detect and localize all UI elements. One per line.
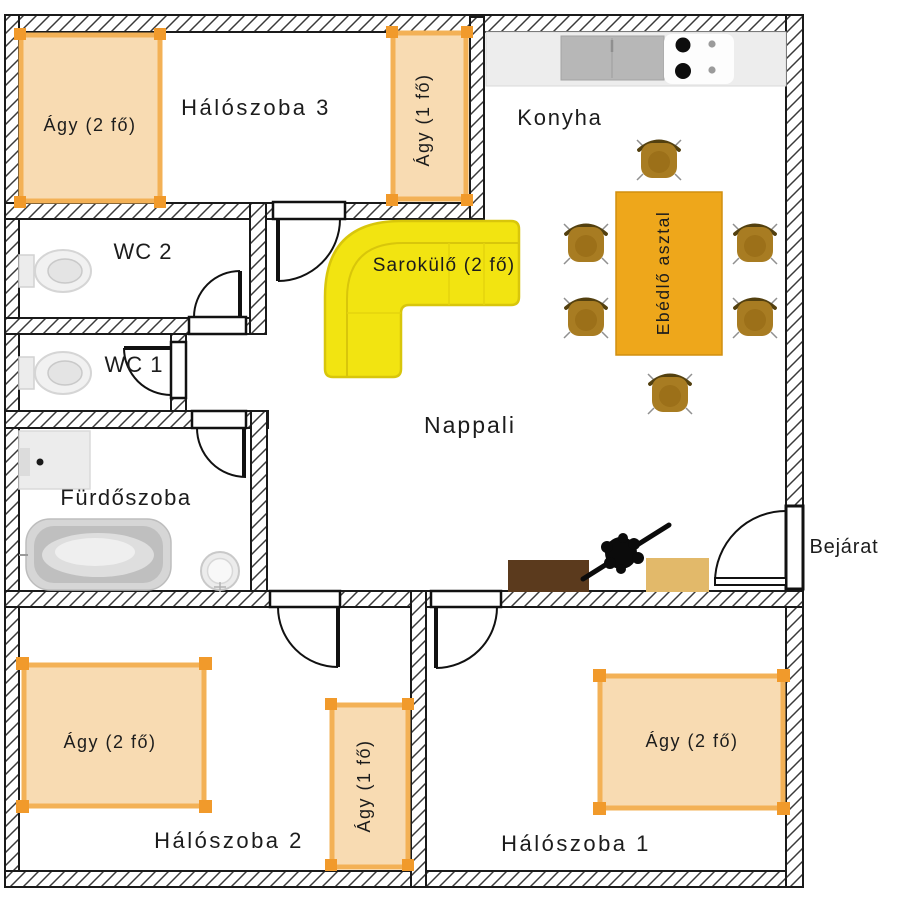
svg-text:Ebédlő asztal: Ebédlő asztal (653, 211, 673, 336)
svg-text:Fürdőszoba: Fürdőszoba (60, 485, 191, 510)
svg-text:Ágy (1 fő): Ágy (1 fő) (413, 73, 433, 166)
svg-text:Ágy (2 fő): Ágy (2 fő) (63, 732, 156, 752)
svg-text:WC 2: WC 2 (114, 239, 173, 264)
svg-text:WC 1: WC 1 (105, 352, 164, 377)
svg-text:Hálószoba 2: Hálószoba 2 (154, 828, 304, 853)
svg-text:Ágy (1 fő): Ágy (1 fő) (354, 739, 374, 832)
svg-text:Nappali: Nappali (424, 412, 516, 438)
svg-text:Hálószoba 3: Hálószoba 3 (181, 95, 331, 120)
svg-text:Bejárat: Bejárat (810, 536, 879, 558)
svg-text:Hálószoba 1: Hálószoba 1 (501, 831, 651, 856)
svg-text:Ágy (2 fő): Ágy (2 fő) (43, 115, 136, 135)
svg-text:Sarokülő (2 fő): Sarokülő (2 fő) (373, 255, 516, 276)
svg-text:Ágy (2 fő): Ágy (2 fő) (645, 731, 738, 751)
svg-text:Konyha: Konyha (517, 105, 602, 130)
